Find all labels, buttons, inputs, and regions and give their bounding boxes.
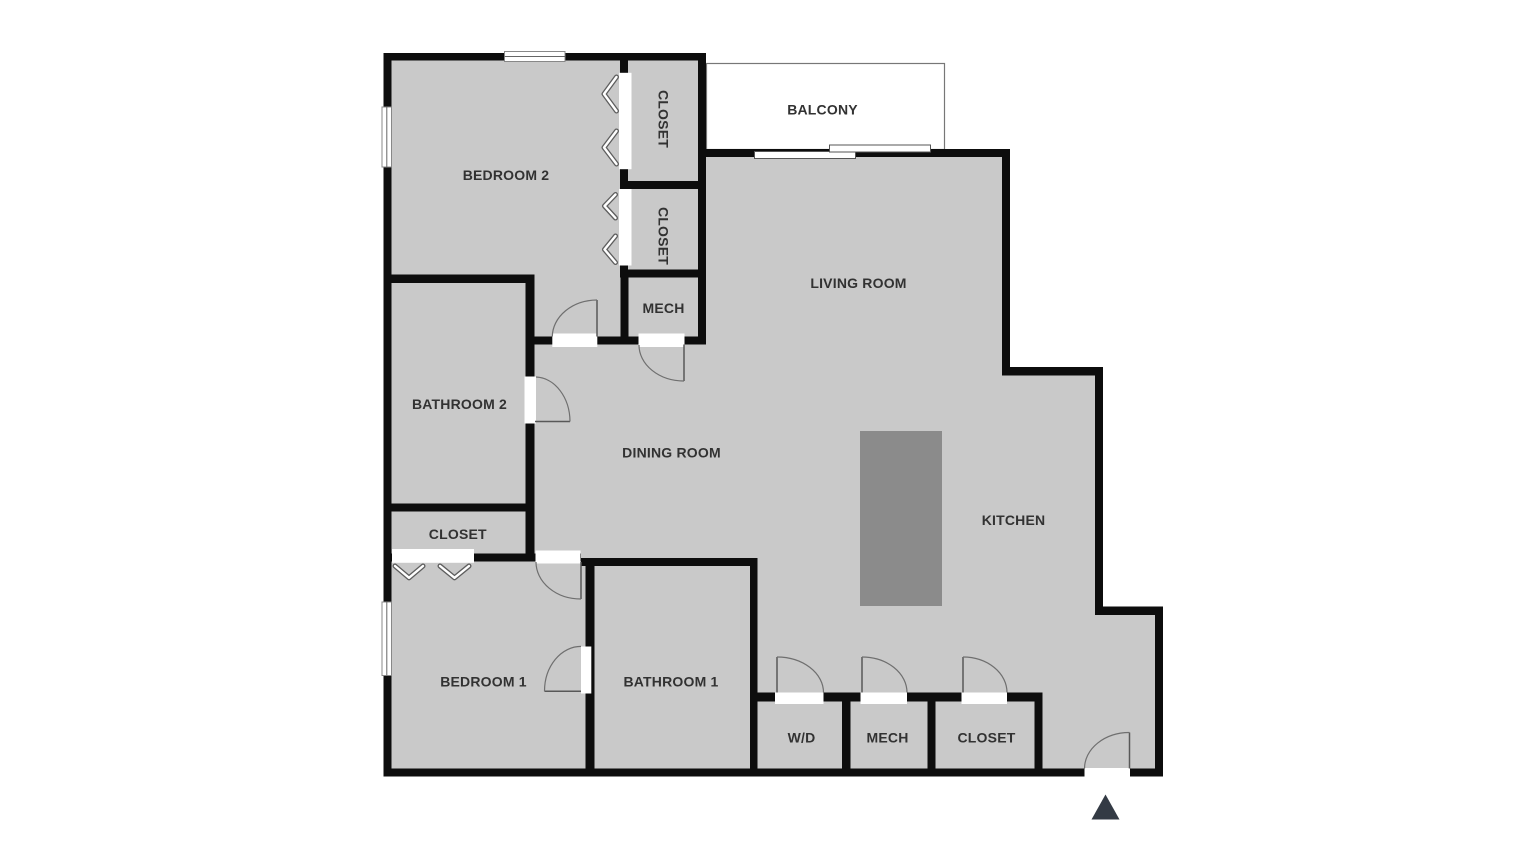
svg-text:BALCONY: BALCONY	[787, 102, 858, 118]
svg-text:DINING ROOM: DINING ROOM	[622, 445, 721, 461]
svg-text:W/D: W/D	[788, 730, 816, 746]
svg-text:BEDROOM 2: BEDROOM 2	[463, 167, 550, 183]
svg-text:CLOSET: CLOSET	[429, 526, 487, 542]
svg-text:KITCHEN: KITCHEN	[982, 512, 1046, 528]
svg-text:BATHROOM 1: BATHROOM 1	[623, 674, 718, 690]
svg-text:MECH: MECH	[866, 730, 908, 746]
svg-text:CLOSET: CLOSET	[958, 730, 1016, 746]
svg-text:BEDROOM 1: BEDROOM 1	[440, 674, 527, 690]
svg-text:CLOSET: CLOSET	[656, 90, 672, 148]
svg-text:MECH: MECH	[642, 300, 684, 316]
svg-text:LIVING ROOM: LIVING ROOM	[810, 275, 906, 291]
svg-text:CLOSET: CLOSET	[656, 207, 672, 265]
svg-text:BATHROOM 2: BATHROOM 2	[412, 396, 507, 412]
